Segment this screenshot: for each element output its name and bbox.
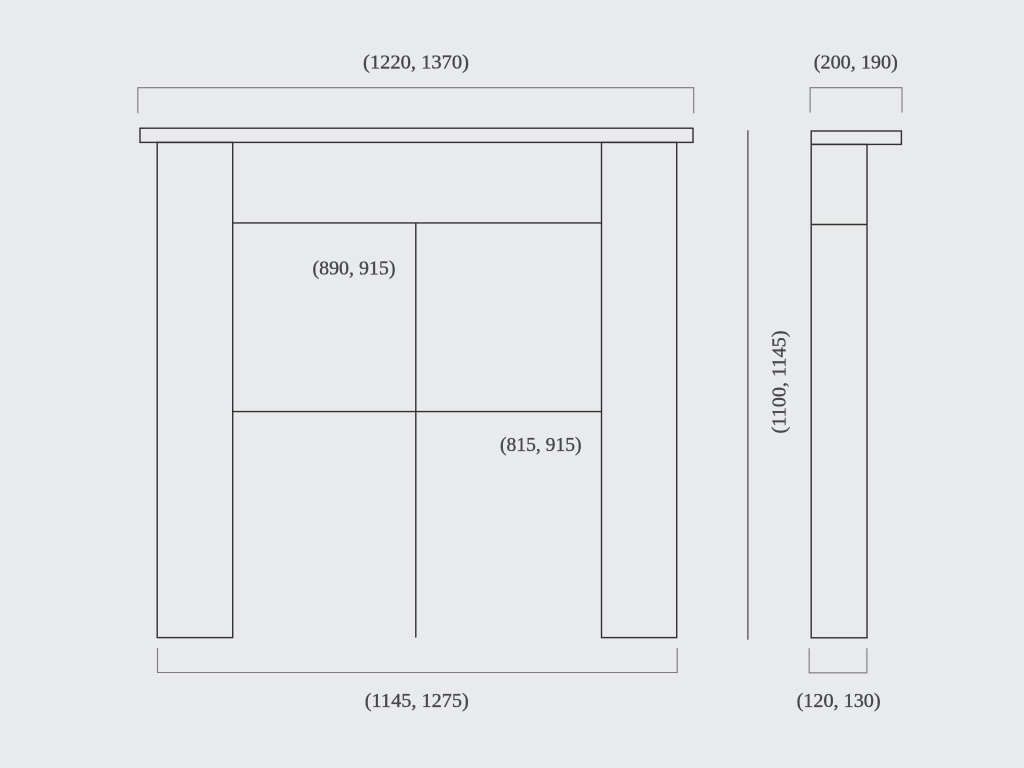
svg-text:(815, 915): (815, 915): [500, 434, 582, 456]
svg-text:(890, 915): (890, 915): [313, 258, 396, 280]
svg-text:(200, 190): (200, 190): [814, 52, 898, 74]
svg-text:(1220, 1370): (1220, 1370): [363, 52, 469, 74]
svg-text:(1100, 1145): (1100, 1145): [769, 331, 791, 434]
svg-text:(120, 130): (120, 130): [797, 690, 881, 712]
svg-text:(1145, 1275): (1145, 1275): [365, 690, 469, 712]
